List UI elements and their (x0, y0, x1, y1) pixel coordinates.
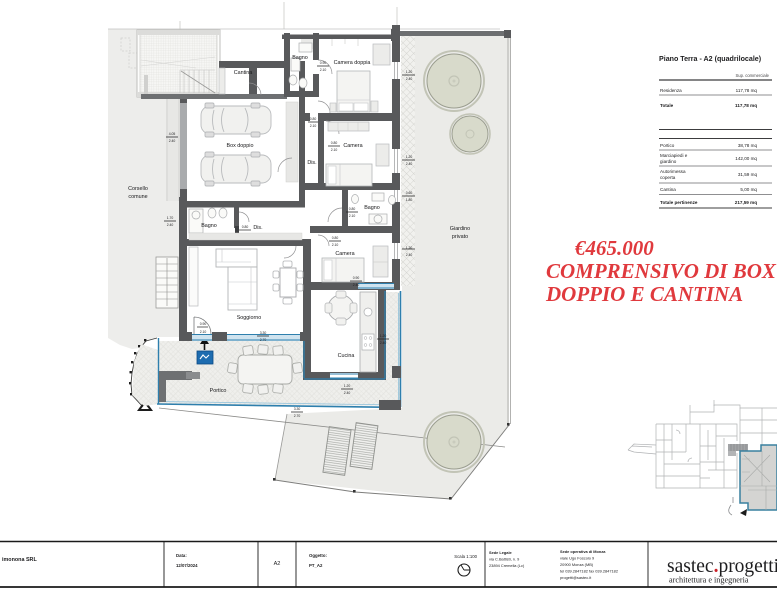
svg-text:Piano Terra - A2 (quadrilocale: Piano Terra - A2 (quadrilocale) (659, 55, 762, 63)
svg-text:Sup. commerciale: Sup. commerciale (735, 73, 769, 78)
svg-text:Portico: Portico (660, 143, 675, 148)
svg-text:Corsello: Corsello (128, 186, 148, 192)
svg-text:architettura e ingegneria: architettura e ingegneria (669, 576, 749, 585)
svg-text:Cucina: Cucina (338, 353, 355, 359)
svg-text:Dis.: Dis. (307, 160, 316, 166)
svg-text:Soggiorno: Soggiorno (237, 315, 262, 321)
svg-text:2.40: 2.40 (167, 223, 174, 227)
svg-text:0.80: 0.80 (349, 207, 356, 211)
svg-text:imonona SRL: imonona SRL (2, 557, 37, 563)
svg-text:0.80: 0.80 (310, 117, 317, 121)
svg-text:Camera: Camera (335, 251, 354, 257)
svg-text:€465.000: €465.000 (574, 236, 654, 260)
svg-text:2.70: 2.70 (294, 414, 301, 418)
svg-text:2.10: 2.10 (200, 330, 207, 334)
svg-text:Box doppio: Box doppio (227, 143, 254, 149)
svg-text:COMPRENSIVO DI BOX: COMPRENSIVO DI BOX (546, 259, 777, 283)
svg-text:viale Ugo Foscolo 9: viale Ugo Foscolo 9 (560, 556, 594, 561)
svg-text:1.20: 1.20 (344, 384, 351, 388)
svg-text:142,00 mq: 142,00 mq (735, 156, 757, 161)
svg-text:2.10: 2.10 (332, 243, 339, 247)
svg-text:Totale: Totale (660, 103, 674, 108)
svg-text:2.70: 2.70 (260, 338, 267, 342)
svg-text:coperta: coperta (660, 175, 676, 180)
svg-text:Autorimessa: Autorimessa (660, 169, 686, 174)
svg-text:2.40: 2.40 (353, 283, 360, 287)
svg-text:progetti@sastec.it: progetti@sastec.it (560, 575, 592, 580)
svg-text:Bagno: Bagno (201, 223, 217, 229)
svg-text:Sede operativa di Monza: Sede operativa di Monza (560, 549, 606, 554)
svg-text:Marciapiedi e: Marciapiedi e (660, 153, 688, 158)
svg-text:2.10: 2.10 (320, 68, 327, 72)
svg-text:0.90: 0.90 (320, 61, 327, 65)
svg-text:38,78 mq: 38,78 mq (738, 143, 758, 148)
svg-text:1.20: 1.20 (380, 334, 387, 338)
svg-text:2.40: 2.40 (406, 77, 413, 81)
svg-text:Oggetto:: Oggetto: (309, 553, 327, 558)
svg-text:0.80: 0.80 (242, 225, 249, 229)
svg-text:1.20: 1.20 (406, 246, 413, 250)
svg-text:1.20: 1.20 (406, 70, 413, 74)
svg-text:2.40: 2.40 (380, 341, 387, 345)
svg-text:Cantina: Cantina (234, 70, 253, 76)
svg-text:1.80: 1.80 (406, 198, 413, 202)
svg-text:3.30: 3.30 (294, 407, 301, 411)
svg-text:Sede Legale: Sede Legale (489, 550, 513, 555)
svg-text:Scala 1:100: Scala 1:100 (454, 554, 477, 559)
svg-text:5,00 mq: 5,00 mq (740, 187, 757, 192)
svg-text:comune: comune (128, 194, 147, 200)
svg-text:20900 Monza (MB): 20900 Monza (MB) (560, 562, 594, 567)
svg-text:Cantina: Cantina (660, 187, 676, 192)
svg-text:1.70: 1.70 (167, 216, 174, 220)
svg-text:12/07/2024: 12/07/2024 (176, 563, 198, 568)
svg-text:A2: A2 (274, 561, 281, 567)
svg-text:0.90: 0.90 (353, 276, 360, 280)
svg-text:2.40: 2.40 (406, 253, 413, 257)
svg-text:3.30: 3.30 (260, 331, 267, 335)
svg-text:217,59 mq: 217,59 mq (735, 200, 757, 205)
svg-text:2.40: 2.40 (169, 139, 176, 143)
svg-text:1.20: 1.20 (406, 155, 413, 159)
svg-text:via C.Battisti, n. 9: via C.Battisti, n. 9 (489, 557, 519, 562)
svg-text:2.10: 2.10 (349, 214, 356, 218)
svg-text:2.10: 2.10 (331, 148, 338, 152)
svg-text:0.80: 0.80 (331, 141, 338, 145)
svg-text:Totale pertinenze: Totale pertinenze (660, 200, 698, 205)
svg-text:Data:: Data: (176, 553, 187, 558)
svg-text:Residenza: Residenza (660, 88, 682, 93)
svg-text:31,59 mq: 31,59 mq (738, 172, 758, 177)
svg-text:Bagno: Bagno (364, 205, 380, 211)
svg-text:117,78 mq: 117,78 mq (736, 88, 758, 93)
svg-text:0.80: 0.80 (332, 236, 339, 240)
svg-text:0.60: 0.60 (406, 191, 413, 195)
svg-text:Dis.: Dis. (253, 225, 262, 231)
svg-text:23894 Cremella (Lc): 23894 Cremella (Lc) (489, 563, 525, 568)
svg-text:2.40: 2.40 (344, 391, 351, 395)
svg-text:Giardino: Giardino (450, 226, 470, 232)
svg-text:sastec.progetti: sastec.progetti (667, 556, 777, 577)
svg-text:Camera: Camera (343, 143, 362, 149)
svg-text:DOPPIO E CANTINA: DOPPIO E CANTINA (545, 282, 743, 306)
svg-text:2.10: 2.10 (310, 124, 317, 128)
svg-text:2.40: 2.40 (406, 162, 413, 166)
svg-text:Bagno: Bagno (292, 55, 308, 61)
svg-text:privato: privato (452, 234, 468, 240)
svg-text:Portico: Portico (210, 388, 227, 394)
svg-text:giardino: giardino (660, 159, 677, 164)
svg-text:4.05: 4.05 (169, 132, 176, 136)
svg-text:0.90: 0.90 (200, 322, 207, 326)
svg-text:Camera doppia: Camera doppia (334, 60, 371, 66)
svg-text:tel 039.2847182 fax 039.2847: tel 039.2847182 fax 039.2847182 (560, 569, 618, 574)
svg-text:PT_A2: PT_A2 (309, 563, 323, 568)
svg-text:117,78 mq: 117,78 mq (735, 103, 757, 108)
